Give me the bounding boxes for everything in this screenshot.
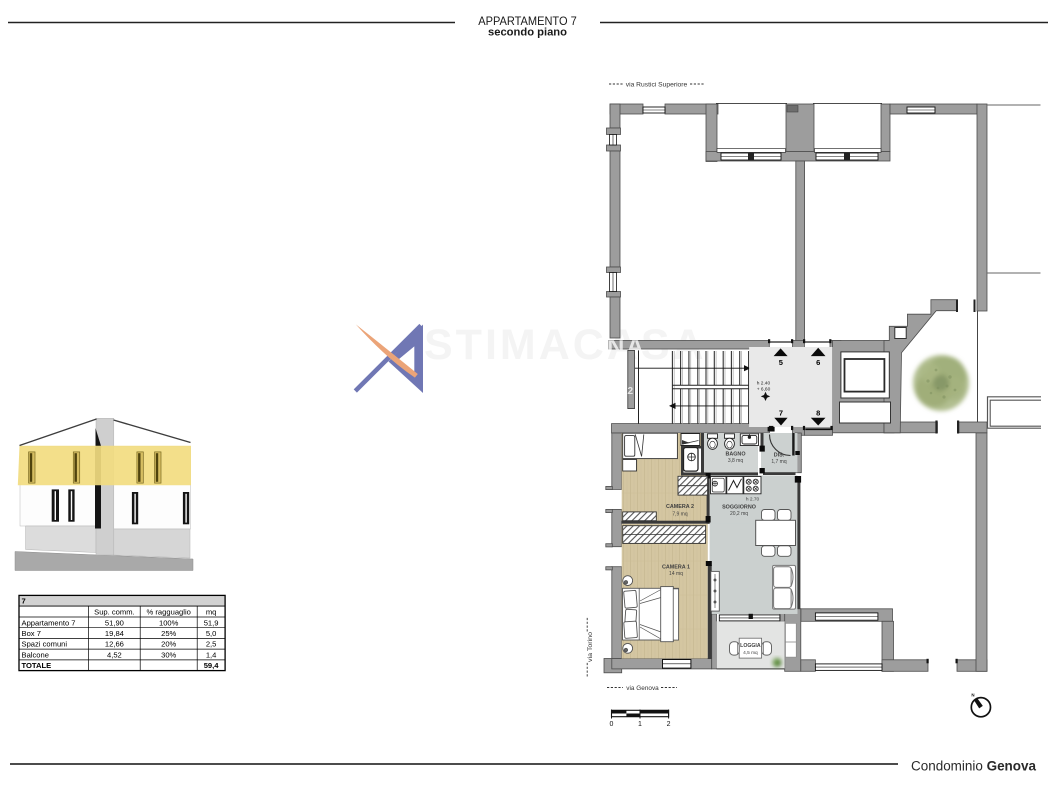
svg-text:1: 1 — [638, 721, 642, 728]
svg-text:via Rustici Superiore: via Rustici Superiore — [626, 82, 688, 89]
svg-text:19,84: 19,84 — [105, 629, 124, 638]
svg-text:7: 7 — [22, 597, 26, 606]
svg-text:100%: 100% — [159, 618, 179, 627]
svg-text:7: 7 — [779, 409, 783, 418]
svg-text:20,2 mq: 20,2 mq — [730, 511, 748, 517]
svg-text:h 2.40: h 2.40 — [757, 380, 771, 386]
svg-text:20%: 20% — [161, 640, 176, 649]
svg-text:CAMERA 1: CAMERA 1 — [662, 565, 690, 571]
svg-text:3,8 mq: 3,8 mq — [728, 458, 744, 464]
svg-text:TOTALE: TOTALE — [22, 661, 52, 670]
svg-text:25%: 25% — [161, 629, 176, 638]
svg-text:Condominio Genova: Condominio Genova — [911, 759, 1036, 775]
svg-text:Box 7: Box 7 — [22, 629, 41, 638]
svg-text:2: 2 — [628, 386, 634, 397]
svg-text:secondo piano: secondo piano — [488, 27, 567, 39]
svg-text:30%: 30% — [161, 650, 176, 659]
svg-text:% ragguaglio: % ragguaglio — [147, 608, 191, 617]
svg-text:51,9: 51,9 — [204, 618, 219, 627]
svg-text:Spazi comuni: Spazi comuni — [22, 640, 68, 649]
svg-text:5: 5 — [779, 358, 783, 367]
svg-text:BAGNO: BAGNO — [725, 452, 745, 458]
svg-text:via Torino: via Torino — [587, 632, 594, 662]
svg-text:2: 2 — [667, 721, 671, 728]
svg-text:Appartamento 7: Appartamento 7 — [22, 618, 76, 627]
svg-text:51,90: 51,90 — [105, 618, 124, 627]
svg-text:CAMERA 2: CAMERA 2 — [666, 504, 694, 510]
svg-text:1,7 mq: 1,7 mq — [771, 459, 787, 465]
svg-text:1,4: 1,4 — [206, 650, 217, 659]
svg-text:Balcone: Balcone — [22, 650, 49, 659]
svg-text:LOGGIA: LOGGIA — [740, 643, 761, 649]
svg-text:+ 6,60: + 6,60 — [757, 387, 771, 393]
svg-text:SOGGIORNO: SOGGIORNO — [722, 505, 756, 511]
svg-text:N: N — [971, 693, 974, 698]
svg-text:2,5: 2,5 — [206, 640, 217, 649]
svg-text:59,4: 59,4 — [204, 661, 220, 670]
svg-text:0: 0 — [610, 721, 614, 728]
svg-text:h 2.70: h 2.70 — [746, 497, 760, 503]
svg-text:6: 6 — [816, 358, 820, 367]
svg-text:8: 8 — [816, 409, 820, 418]
svg-text:4,52: 4,52 — [107, 650, 122, 659]
svg-text:Sup. comm.: Sup. comm. — [94, 608, 135, 617]
svg-text:DIS.: DIS. — [774, 453, 785, 459]
svg-text:7,9 mq: 7,9 mq — [672, 512, 688, 518]
svg-text:4,5 mq: 4,5 mq — [743, 650, 758, 656]
svg-text:14 mq: 14 mq — [669, 571, 683, 577]
svg-text:mq: mq — [206, 608, 217, 617]
svg-text:12,66: 12,66 — [105, 640, 124, 649]
svg-text:via Genova: via Genova — [626, 685, 659, 692]
svg-text:5,0: 5,0 — [206, 629, 217, 638]
